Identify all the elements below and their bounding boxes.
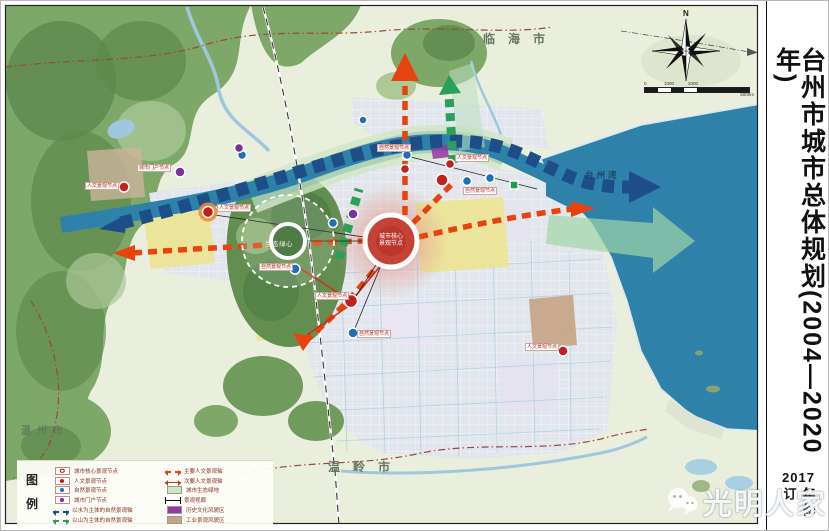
- planning-map-sheet: 临海市 温岭市 温州市 台州湾 生态绿心 城市核心 景观节点 城市门户节点 人文…: [0, 0, 829, 531]
- view-corridor-icon: [165, 497, 181, 504]
- mountain-axis-icon: [53, 520, 69, 522]
- core-node-icon: [55, 467, 70, 475]
- gateway-node-icon: [55, 496, 70, 504]
- node-label: 人文景观节点: [85, 182, 119, 190]
- scale-tick: 1000: [664, 81, 674, 86]
- green-heart-label: 生态绿心: [265, 238, 293, 248]
- watermark: 光明人家: [665, 481, 827, 523]
- scale-tick: 2000: [688, 81, 698, 86]
- industry-zone-swatch-icon: [167, 516, 182, 524]
- scale-tick: 0: [644, 81, 647, 86]
- map-title: 台州市城市总体规划(2004—2020年): [774, 47, 824, 462]
- scale-bar: 0 1000 2000 5000m: [644, 81, 752, 93]
- water-axis-icon: [53, 511, 69, 513]
- humanistic-node-icon: [55, 477, 70, 485]
- node-label: 人文景观节点: [217, 204, 251, 212]
- node-label: 人文景观节点: [455, 154, 489, 162]
- scale-end-label: 5000m: [740, 92, 754, 97]
- legend: 图 例 城市核心景观节点 人文景观节点 自然景观节点 城市门户节点 以水为主体的…: [17, 460, 273, 527]
- history-zone-swatch-icon: [167, 506, 182, 514]
- node-label: 城市门户节点: [137, 164, 171, 172]
- node-label: 自然景观节点: [259, 263, 293, 271]
- secondary-axis-icon: [165, 482, 181, 483]
- legend-heading: 图 例: [25, 468, 39, 516]
- natural-node-icon: [55, 486, 70, 494]
- main-axis-icon: [165, 471, 181, 473]
- node-label: 自然景观节点: [357, 330, 391, 338]
- core-node-label: 城市核心 景观节点: [369, 234, 413, 247]
- node-label: 自然景观节点: [377, 144, 411, 152]
- node-label: 人文景观节点: [525, 343, 559, 351]
- region-label-north: 临海市: [483, 30, 558, 47]
- node-label: 自然景观节点: [463, 187, 497, 195]
- north-label: N: [683, 9, 689, 18]
- title-panel: 台州市城市总体规划(2004—2020年) 2017 年修订: [766, 1, 829, 531]
- bay-label: 台州湾: [585, 169, 620, 181]
- region-label-south: 温岭市: [328, 458, 403, 475]
- watermark-text: 光明人家: [703, 481, 827, 523]
- node-label: 人文景观节点: [315, 292, 349, 300]
- eco-green-swatch-icon: [167, 486, 182, 494]
- wechat-icon: [665, 487, 701, 517]
- region-label-west: 温州市: [21, 422, 69, 437]
